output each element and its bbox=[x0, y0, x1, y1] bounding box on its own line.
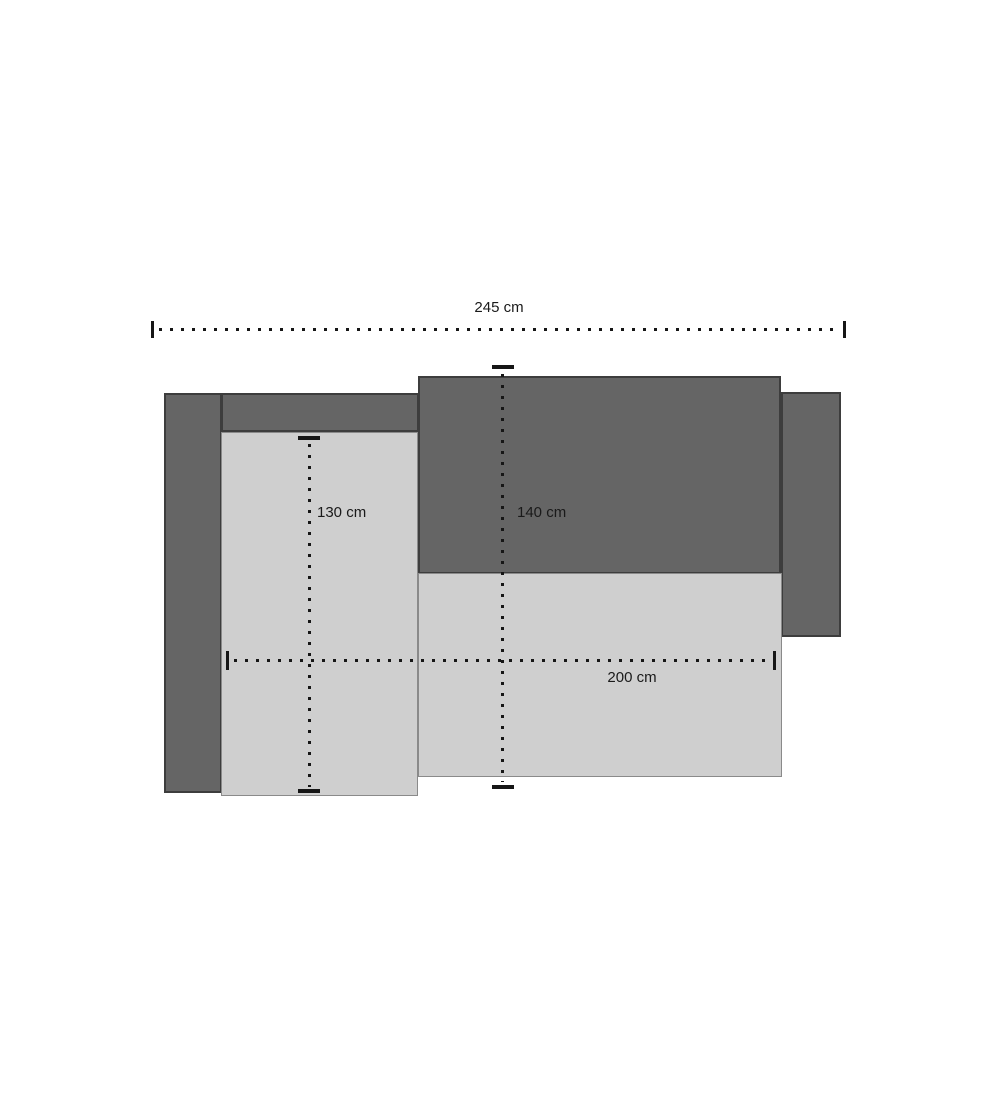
dimension-label-sofa-depth: 140 cm bbox=[517, 504, 566, 521]
dimension-label-seat-width: 200 cm bbox=[580, 669, 684, 686]
dimension-dotted-line-seat-width bbox=[234, 659, 771, 662]
dimension-tick-right bbox=[843, 321, 846, 338]
dimension-label-chaise-depth: 130 cm bbox=[317, 504, 366, 521]
dimension-cap-top bbox=[298, 436, 320, 440]
dimension-cap-bottom bbox=[492, 785, 514, 789]
right-armrest-shape bbox=[781, 392, 841, 637]
dimension-cap-bottom bbox=[298, 789, 320, 793]
chaise-seat-shape bbox=[221, 432, 418, 796]
dimension-dotted-line-sofa-depth bbox=[501, 374, 504, 782]
dimension-dotted-line-chaise-depth bbox=[308, 444, 311, 787]
dimension-tick-left bbox=[151, 321, 154, 338]
left-backrest-strip-shape bbox=[221, 393, 419, 432]
dimension-cap-top bbox=[492, 365, 514, 369]
sofa-dimension-diagram: 245 cm 130 cm 140 cm 200 cm bbox=[0, 0, 1000, 1100]
dimension-label-total-width: 245 cm bbox=[153, 299, 845, 316]
dimension-dotted-line-total-width bbox=[159, 328, 841, 331]
left-armrest-shape bbox=[164, 393, 222, 793]
dimension-tick-right bbox=[773, 651, 776, 670]
main-backrest-shape bbox=[418, 376, 781, 574]
dimension-tick-left bbox=[226, 651, 229, 670]
